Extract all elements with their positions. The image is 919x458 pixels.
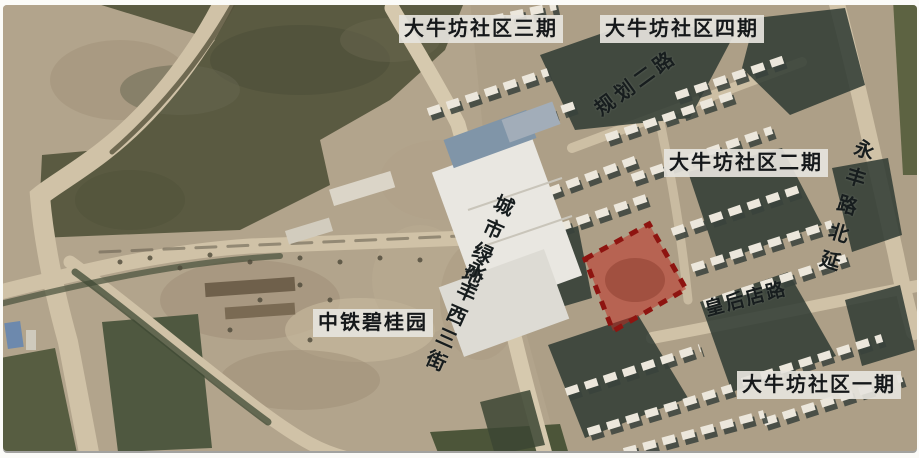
label-community-phase2: 大牛坊社区二期 <box>664 149 828 177</box>
satellite-map: 大牛坊社区三期 大牛坊社区四期 大牛坊社区二期 中铁碧桂园 大牛坊社区一期 规划… <box>3 5 917 451</box>
label-community-phase3: 大牛坊社区三期 <box>399 15 563 43</box>
label-community-phase1: 大牛坊社区一期 <box>737 371 901 399</box>
screenshot-frame: 大牛坊社区三期 大牛坊社区四期 大牛坊社区二期 中铁碧桂园 大牛坊社区一期 规划… <box>0 0 919 458</box>
label-community-phase4: 大牛坊社区四期 <box>600 15 764 43</box>
label-china-railway-country-garden: 中铁碧桂园 <box>313 309 433 337</box>
